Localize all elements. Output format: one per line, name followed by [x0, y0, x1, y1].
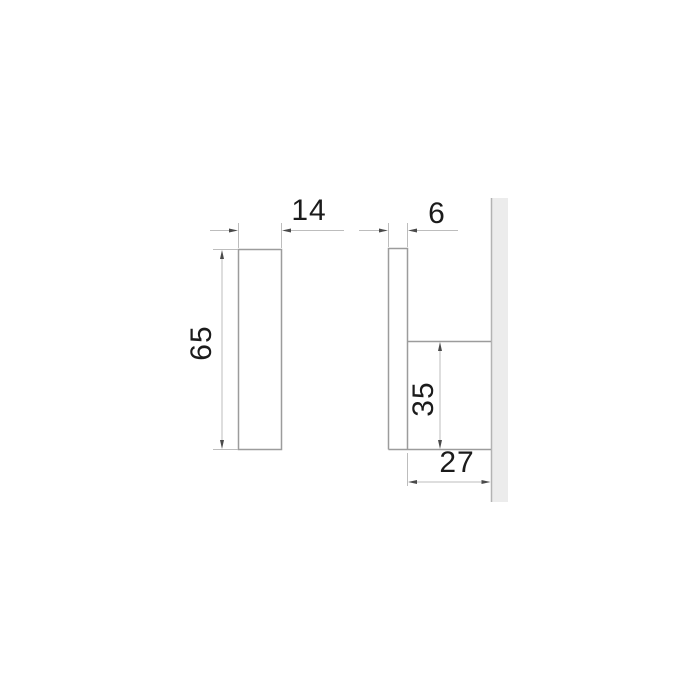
drawing-canvas: 14 65 6 35 27 [0, 0, 700, 700]
wall-surface [491, 198, 508, 502]
front-view-outline [239, 250, 282, 450]
dimension-drawing [0, 0, 700, 700]
dim-label-bracket-height: 35 [407, 369, 441, 429]
dim-label-depth: 27 [427, 446, 487, 480]
dim-label-plate-thickness: 6 [407, 197, 467, 231]
dim-label-front-height: 65 [185, 313, 219, 373]
dim-label-front-width: 14 [279, 194, 339, 228]
